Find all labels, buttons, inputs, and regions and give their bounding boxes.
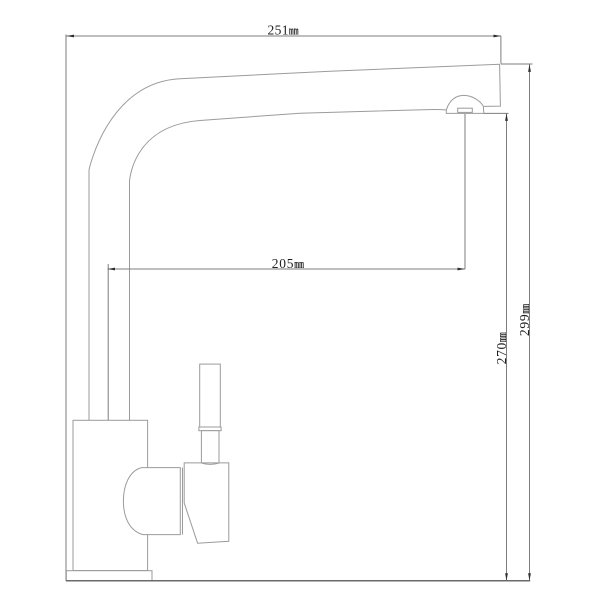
svg-text:270mm: 270mm	[494, 332, 509, 364]
svg-text:205mm: 205mm	[272, 256, 304, 271]
svg-text:251mm: 251mm	[268, 22, 299, 37]
svg-text:299mm: 299mm	[517, 304, 532, 336]
